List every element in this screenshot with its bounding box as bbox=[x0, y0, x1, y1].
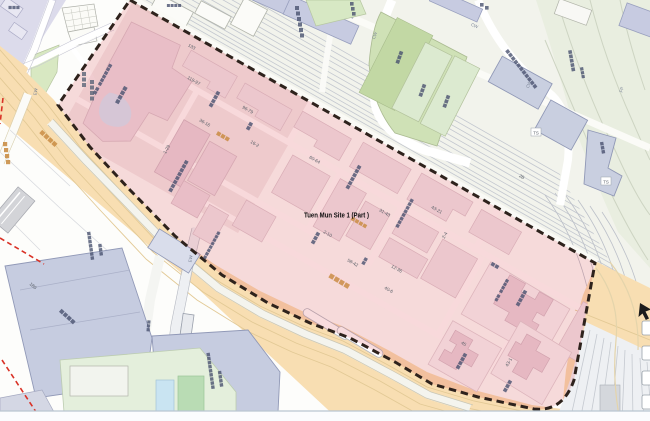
svg-text:Tuen Mun Site 1 (Part ): Tuen Mun Site 1 (Part ) bbox=[304, 211, 370, 220]
svg-text:TS: TS bbox=[533, 131, 539, 136]
svg-text:TS: TS bbox=[603, 180, 609, 185]
